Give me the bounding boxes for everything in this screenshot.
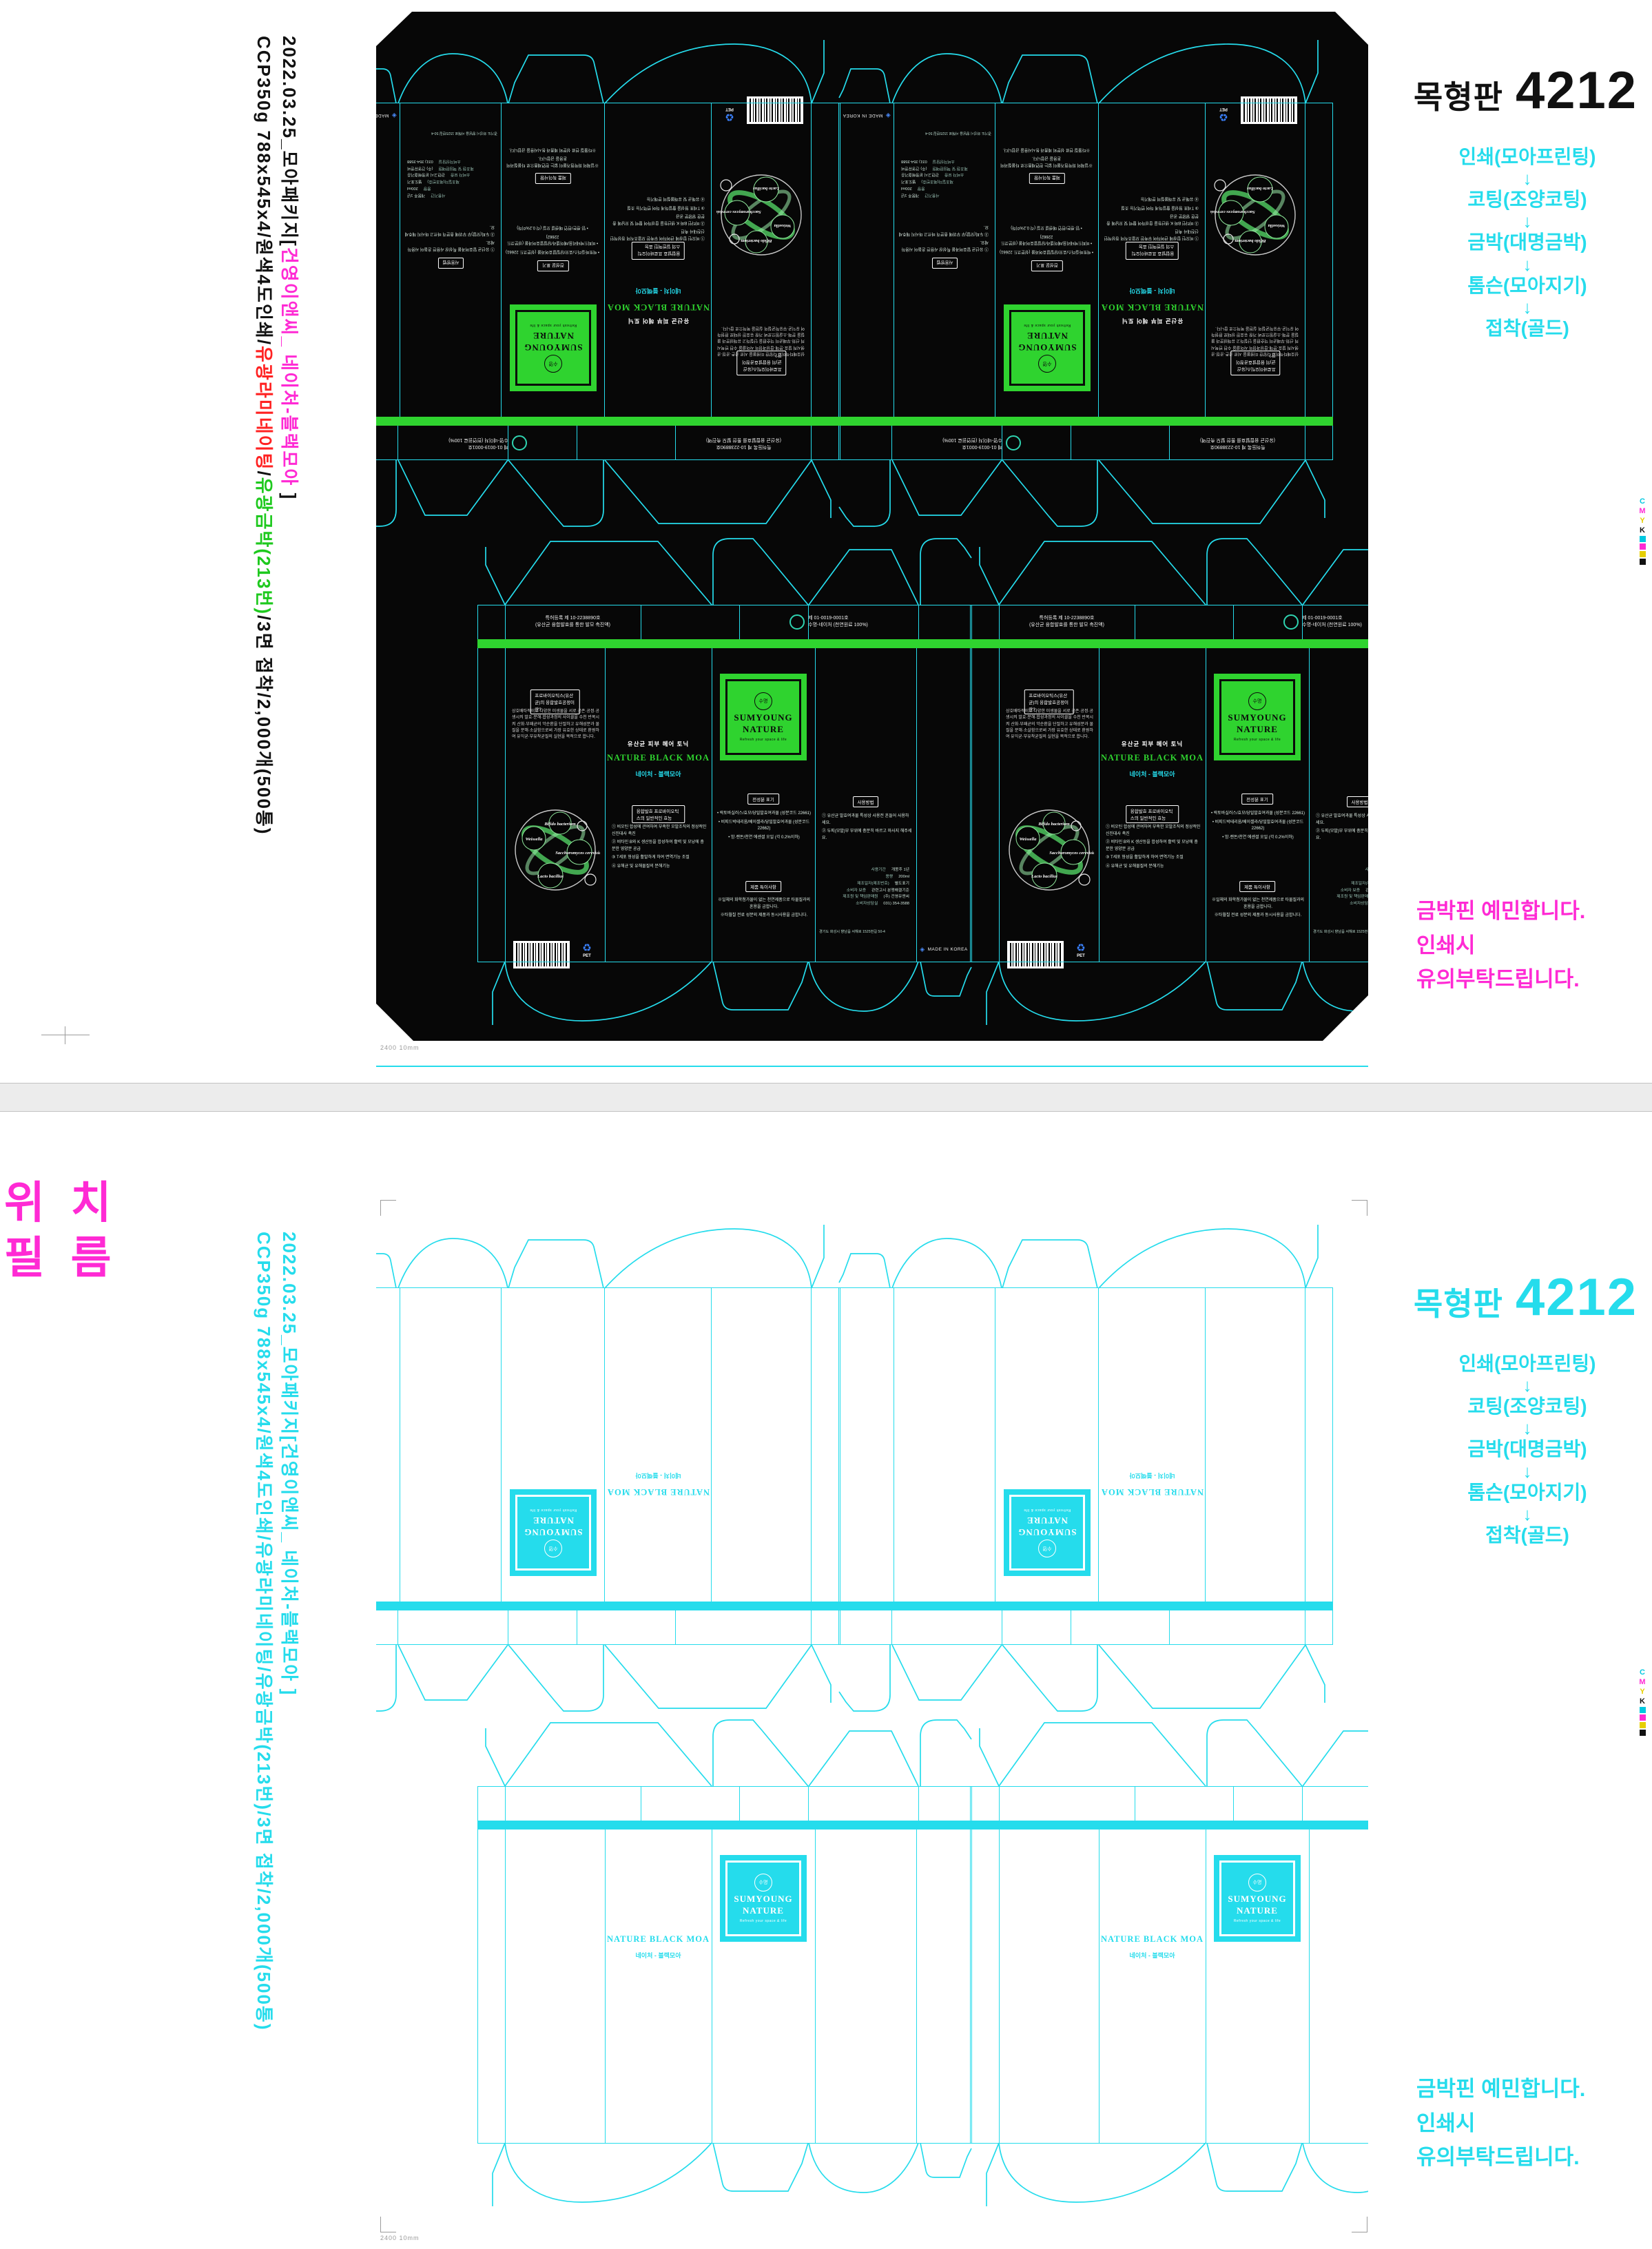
ingredient-item: • 밤·랜돈/천연 에센셜 오일 (각 0.2%이하) xyxy=(1000,224,1093,231)
label-panel: 수명 SUMYOUNG NATURE Refresh your space & … xyxy=(502,103,605,417)
natural-ingredient-badge-icon xyxy=(1283,614,1299,630)
brand-crest-icon: 수명 xyxy=(1038,1540,1056,1557)
probiotics-diagram: Weissella Bifido bacterium Saccharomyces… xyxy=(716,163,806,267)
foil-band xyxy=(376,1602,839,1610)
plate-title-number: 4212 xyxy=(1516,1267,1638,1327)
efficacy-item: ② 비타민 B와 K 생산등을 합성하여 활력 및 모낭에 충분한 영양분 공급 xyxy=(1106,840,1201,853)
maker-address: 경기도 화성시 향남읍 서해로 1525번길 50-4 xyxy=(925,131,991,136)
back-panel: 프로바이오틱스(유산균)의 융합발효공정이란? 상호배타적이고 다양한 미생물을… xyxy=(1206,1288,1305,1602)
pet-label: PET xyxy=(1212,107,1235,111)
front-panel: 유산균 피부 헤어 토닉 NATURE BLACK MOA 네이처 - 블랙모아… xyxy=(1099,103,1206,417)
patent-line2: (유산균 융합발효를 통한 발모 촉진액) xyxy=(1200,436,1275,444)
brand-tagline: Refresh your space & life xyxy=(740,1919,787,1923)
usage-list: ① 유산균 발효여과물 특성상 사용전 흔들어 사용하세요. ② 두피(모발)부… xyxy=(1316,813,1368,844)
plate-title-label: 목형판 xyxy=(1414,72,1503,118)
brand-name-top: SUMYOUNG xyxy=(1018,342,1076,353)
spec-row: 소비자 보증관련고시 분쟁해결기준 xyxy=(901,171,990,178)
brand-name-bottom: NATURE xyxy=(743,725,784,735)
bottom-flaps-outline xyxy=(376,1218,839,1288)
probiotics-diagram: Weissella Bifido bacterium Saccharomyces… xyxy=(1004,798,1094,902)
lid-strip: 특허등록 제 10-2238890호 (유산균 융합발효를 통한 발모 촉진액)… xyxy=(376,426,839,460)
brand-label: 수명 SUMYOUNG NATURE Refresh your space & … xyxy=(510,304,597,391)
brand-label-frame: 수명 SUMYOUNG NATURE Refresh your space & … xyxy=(725,679,801,755)
top-job-info-vertical-text: 2022.03.25_모아패키지[건영이앤씨_ 네이처-블랙모아 ] CCP35… xyxy=(252,36,303,952)
panel-area: 프로바이오틱스(유산균)의 융합발효공정이란? 상호배타적이고 다양한 미생물을… xyxy=(477,1830,971,2143)
label-panel: 수명 SUMYOUNG NATURE Refresh your space & … xyxy=(712,648,815,962)
bottom-flaps-outline xyxy=(839,1218,1333,1288)
plate-title-number: 4212 xyxy=(1516,61,1638,121)
product-name-kr: 네이처 - 블랙모아 xyxy=(605,287,712,296)
spec-table: 사용기간개봉후 1년 용량200ml 제조일자(제조번호)별도표기 소비자 보증… xyxy=(407,157,496,198)
panel-area: 프로바이오틱스(유산균)의 융합발효공정이란? 상호배타적이고 다양한 미생물을… xyxy=(971,1830,1368,2143)
efficacy-list: ① 비오틴 합성에 관여하여 부족한 모발조직의 정상적인 신진대사 촉진 ② … xyxy=(1106,825,1201,873)
job-info-line2: CCP350g 788x545x4/원색4도인쇄/유광라미네이팅/유광금박(21… xyxy=(252,36,278,952)
carton-dieline: 특허등록 제 10-2238890호 (유산균 융합발효를 통한 발모 촉진액)… xyxy=(376,1218,839,1734)
arrow-down-icon: ↓ xyxy=(1414,1462,1641,1480)
pet-recycle-icon: ♻PET xyxy=(575,943,599,958)
spec-row: 용량200ml xyxy=(820,874,909,881)
ingredient-item: • 밤·랜돈/천연 에센셜 오일 (각 0.2%이하) xyxy=(506,224,599,231)
arrow-down-icon: ↓ xyxy=(1414,212,1641,230)
brand-name-bottom: NATURE xyxy=(743,1906,784,1916)
efficacy-item: ② 비타민 B와 K 생산등을 합성하여 활력 및 모낭에 충분한 영양분 공급 xyxy=(1103,212,1199,225)
cert-line2: 수명-네이처 (천연원료 100%) xyxy=(448,436,508,444)
product-name-en: NATURE BLACK MOA xyxy=(1099,1486,1206,1497)
spec-row: 소비자상담실031) 354-3588 xyxy=(820,901,909,908)
process-step: 접착(골드) xyxy=(1414,1524,1641,1546)
patent-text: 특허등록 제 10-2238890호 (유산균 융합발효를 통한 발모 촉진액) xyxy=(999,605,1135,639)
lid-strip: 특허등록 제 10-2238890호 (유산균 융합발효를 통한 발모 촉진액)… xyxy=(477,1786,971,1821)
usage-heading: 사용방법 xyxy=(1347,796,1368,807)
special-line: ※타월칠 전료 성분외 제품과 동시사용을 금합니다. xyxy=(506,145,599,152)
film-edge-line xyxy=(376,1066,1368,1067)
brand-label: 수명 SUMYOUNG NATURE Refresh your space & … xyxy=(1004,304,1091,391)
foil-band xyxy=(839,1602,1333,1610)
product-name-kr: 네이처 - 블랙모아 xyxy=(1099,1471,1206,1480)
process-step: 코팅(조양코팅) xyxy=(1414,189,1641,211)
spec-table: 사용기간개봉후 1년 용량200ml 제조일자(제조번호)별도표기 소비자 보증… xyxy=(820,867,909,908)
maker-address: 경기도 화성시 향남읍 서해로 1525번길 50-4 xyxy=(431,131,497,136)
diagram-label: Saccharomyces cerevisiae xyxy=(555,851,600,856)
patent-line2: (유산균 융합발효를 통한 발모 촉진액) xyxy=(706,436,781,444)
certification-text: 제 01-0019-0001호 수명-네이처 (천연원료 100%) xyxy=(739,605,918,639)
brand-crest-icon: 수명 xyxy=(754,692,772,710)
ingredients-heading: 전성분 표기 xyxy=(1241,794,1273,805)
cert-line2: 수명-네이처 (천연원료 100%) xyxy=(808,622,868,630)
back-panel: 프로바이오틱스(유산균)의 융합발효공정이란? 상호배타적이고 다양한 미생물을… xyxy=(1206,103,1305,417)
brand-label-frame: 수명 SUMYOUNG NATURE Refresh your space & … xyxy=(1009,1495,1085,1571)
brand-tagline: Refresh your space & life xyxy=(1024,1508,1071,1512)
bottom-flaps-outline xyxy=(839,33,1333,103)
usage-item: ① 유산균 발효여과물 특성상 사용전 흔들어 사용하세요. xyxy=(1316,813,1368,827)
product-type: 유산균 피부 헤어 토닉 xyxy=(605,740,712,748)
front-panel: 유산균 피부 헤어 토닉 NATURE BLACK MOA 네이처 - 블랙모아… xyxy=(605,1830,712,2143)
arrow-down-icon: ↓ xyxy=(1414,1419,1641,1437)
label-panel: 수명 SUMYOUNG NATURE Refresh your space & … xyxy=(1206,648,1309,962)
diagram-label: Weissella xyxy=(526,837,544,842)
process-step: 톰슨(모아지기) xyxy=(1414,1482,1641,1504)
product-name-kr: 네이처 - 블랙모아 xyxy=(605,1471,712,1480)
bottom-flaps-outline xyxy=(971,2143,1368,2213)
ingredients-list: • 락토바실러스/효모/당밀발효여과물 (성분코드 22661) • 비피드박테… xyxy=(506,222,599,254)
brand-label: 수명 SUMYOUNG NATURE Refresh your space & … xyxy=(1214,1855,1301,1942)
special-line: ※타월칠 전료 성분외 제품과 동시사용을 금합니다. xyxy=(1000,145,1093,152)
spec-row: 사용기간개봉후 1년 xyxy=(407,191,496,198)
made-in-korea: ◈ MADE IN KOREA xyxy=(916,946,971,953)
efficacy-item: ① 비오틴 합성에 관여하여 부족한 모발조직의 정상적인 신진대사 촉진 xyxy=(1106,825,1201,838)
brand-name-top: SUMYOUNG xyxy=(734,713,792,723)
efficacy-item: ③ T세포 형성을 활발하게 하여 면역기능 조절 xyxy=(1103,203,1199,210)
special-line: ※일체의 화학첨가물이 없는 천연제품으로 타물질과의 혼용을 금합니다. xyxy=(506,154,599,167)
diagram-label: Bifido bacterium xyxy=(1235,238,1266,243)
spec-table: 사용기간개봉후 1년 용량200ml 제조일자(제조번호)별도표기 소비자 보증… xyxy=(901,157,990,198)
panel-area: 프로바이오틱스(유산균)의 융합발효공정이란? 상호배타적이고 다양한 미생물을… xyxy=(839,1288,1333,1602)
product-name-en: NATURE BLACK MOA xyxy=(605,302,712,312)
diagram-label: Bifido bacterium xyxy=(1037,822,1069,827)
spec-row: 제조일자(제조번호)별도표기 xyxy=(1314,881,1368,888)
diagram-label: Lacto bacillus xyxy=(1247,186,1274,191)
usage-item: ② 두피(모발)부 부위에 충분히 바르고 마사지 해주세요. xyxy=(822,829,912,842)
plate-title-top: 목형판 4212 xyxy=(1414,61,1638,121)
process-step: 접착(골드) xyxy=(1414,318,1641,340)
ingredient-item: • 비피드박테리움/베이셀라/당밀발효여과물 (성분코드 22662) xyxy=(1211,820,1305,833)
lid-flaps-outline xyxy=(971,1697,1368,1786)
certification-text: 제 01-0019-0001호 수명-네이처 (천연원료 100%) xyxy=(1233,605,1368,639)
usage-heading: 사용방법 xyxy=(438,258,464,269)
printed-plate: 특허등록 제 10-2238890호 (유산균 융합발효를 통한 발모 촉진액)… xyxy=(376,12,1368,1041)
brand-tagline: Refresh your space & life xyxy=(1024,323,1071,327)
bottom-flaps-outline xyxy=(376,33,839,103)
label-panel: 수명 SUMYOUNG NATURE Refresh your space & … xyxy=(995,1288,1099,1602)
ingredient-item: • 밤·랜돈/천연 에센셜 오일 (각 0.2%이하) xyxy=(1211,835,1305,842)
lid-strip: 특허등록 제 10-2238890호 (유산균 융합발효를 통한 발모 촉진액)… xyxy=(839,1610,1333,1645)
back-panel: 프로바이오틱스(유산균)의 융합발효공정이란? 상호배타적이고 다양한 미생물을… xyxy=(999,648,1099,962)
product-name-en: NATURE BLACK MOA xyxy=(1099,753,1206,763)
brand-name-top: SUMYOUNG xyxy=(1228,713,1286,723)
usage-item: ② 두피(모발)부 부위에 충분히 바르고 마사지 해주세요. xyxy=(404,223,495,236)
carton-dieline: 특허등록 제 10-2238890호 (유산균 융합발효를 통한 발모 촉진액)… xyxy=(477,515,971,1032)
carton-dieline: 특허등록 제 10-2238890호 (유산균 융합발효를 통한 발모 촉진액)… xyxy=(971,515,1368,1032)
ingredients-heading: 전성분 표기 xyxy=(1031,260,1063,271)
carton-dieline: 특허등록 제 10-2238890호 (유산균 융합발효를 통한 발모 촉진액)… xyxy=(971,1697,1368,2213)
spec-row: 사용기간개봉후 1년 xyxy=(820,867,909,874)
product-name-en: NATURE BLACK MOA xyxy=(605,753,712,763)
panel-area: 프로바이오틱스(유산균)의 융합발효공정이란? 상호배타적이고 다양한 미생물을… xyxy=(971,648,1368,962)
brand-label: 수명 SUMYOUNG NATURE Refresh your space & … xyxy=(1214,674,1301,760)
efficacy-item: ② 비타민 B와 K 생산등을 합성하여 활력 및 모낭에 충분한 영양분 공급 xyxy=(612,840,708,853)
brand-tagline: Refresh your space & life xyxy=(530,1508,577,1512)
diagram-label: Weissella xyxy=(1268,223,1286,228)
ingredient-item: • 락토바실러스/효모/당밀발효여과물 (성분코드 22661) xyxy=(717,811,811,818)
ingredient-item: • 락토바실러스/효모/당밀발효여과물 (성분코드 22661) xyxy=(506,247,599,254)
usage-panel: 사용방법 ① 유산균 발효여과물 특성상 사용전 흔들어 사용하세요. ② 두피… xyxy=(400,103,502,417)
pet-label: PET xyxy=(718,107,741,111)
back-panel: 프로바이오틱스(유산균)의 융합발효공정이란? 상호배타적이고 다양한 미생물을… xyxy=(712,1288,812,1602)
process-step: 톰슨(모아지기) xyxy=(1414,275,1641,297)
usage-panel: 사용방법 ① 유산균 발효여과물 특성상 사용전 흔들어 사용하세요. ② 두피… xyxy=(400,1288,502,1602)
side-panel: ◈ MADE IN KOREA xyxy=(916,648,971,962)
efficacy-heading: 융합발효 프로바이오틱스의 일반적인 효능 xyxy=(632,805,685,823)
spec-row: 소비자 보증관련고시 분쟁해결기준 xyxy=(820,888,909,895)
efficacy-item: ③ T세포 형성을 활발하게 하여 면역기능 조절 xyxy=(612,855,708,862)
panel-area: 프로바이오틱스(유산균)의 융합발효공정이란? 상호배타적이고 다양한 미생물을… xyxy=(477,648,971,962)
made-in-korea: ◈ MADE IN KOREA xyxy=(376,112,400,119)
brand-label-frame: 수명 SUMYOUNG NATURE Refresh your space & … xyxy=(1009,310,1085,386)
page-divider xyxy=(0,1083,1652,1112)
label-panel: 수명 SUMYOUNG NATURE Refresh your space & … xyxy=(1206,1830,1309,2143)
special-line: ※타월칠 전료 성분외 제품과 동시사용을 금합니다. xyxy=(717,913,811,920)
brand-name-bottom: NATURE xyxy=(1237,725,1278,735)
brand-label: 수명 SUMYOUNG NATURE Refresh your space & … xyxy=(720,1855,807,1942)
side-panel: ◈ MADE IN KOREA xyxy=(839,103,894,417)
special-heading: 제품 특이사항 xyxy=(535,173,571,184)
cmyk-color-bar-top: C M Y K xyxy=(1637,497,1648,565)
brand-name-bottom: NATURE xyxy=(533,331,574,341)
spec-row: 소비자 보증관련고시 분쟁해결기준 xyxy=(1314,888,1368,895)
usage-item: ② 두피(모발)부 부위에 충분히 바르고 마사지 해주세요. xyxy=(1316,829,1368,842)
special-list: ※일체의 화학첨가물이 없는 천연제품으로 타물질과의 혼용을 금합니다. ※타… xyxy=(506,143,599,167)
brand-name-bottom: NATURE xyxy=(1026,331,1068,341)
plate-title-bottom: 목형판 4212 xyxy=(1414,1267,1638,1327)
spec-row: 제조일자(제조번호)별도표기 xyxy=(407,177,496,184)
efficacy-list: ① 비오틴 합성에 관여하여 부족한 모발조직의 정상적인 신진대사 촉진 ② … xyxy=(609,192,705,240)
efficacy-item: ① 비오틴 합성에 관여하여 부족한 모발조직의 정상적인 신진대사 촉진 xyxy=(1103,227,1199,240)
ingredient-item: • 비피드박테리움/베이셀라/당밀발효여과물 (성분코드 22662) xyxy=(717,820,811,833)
diagram-label: Saccharomyces cerevisiae xyxy=(1210,209,1255,214)
cert-line1: 제 01-0019-0001호 xyxy=(808,615,868,623)
back-paragraph: 상호배타적이고 다양한 미생물을 서로 공존·공정·공생시켜 발효·분해·합성과… xyxy=(1211,324,1299,356)
patent-line1: 특허등록 제 10-2238890호 xyxy=(535,615,610,623)
brand-label-frame: 수명 SUMYOUNG NATURE Refresh your space & … xyxy=(725,1861,801,1936)
carton-dieline: 특허등록 제 10-2238890호 (유산균 융합발효를 통한 발모 촉진액)… xyxy=(376,33,839,550)
side-panel: ◈ MADE IN KOREA xyxy=(376,103,400,417)
usage-list: ① 유산균 발효여과물 특성상 사용전 흔들어 사용하세요. ② 두피(모발)부… xyxy=(822,813,912,844)
lid-strip: 특허등록 제 10-2238890호 (유산균 융합발효를 통한 발모 촉진액)… xyxy=(839,426,1333,460)
product-name-kr: 네이처 - 블랙모아 xyxy=(605,1951,712,1960)
arrow-down-icon: ↓ xyxy=(1414,1376,1641,1394)
brand-crest-icon: 수명 xyxy=(754,1874,772,1892)
usage-panel: 사용방법 ① 유산균 발효여과물 특성상 사용전 흔들어 사용하세요. ② 두피… xyxy=(1309,1830,1368,2143)
back-panel: 프로바이오틱스(유산균)의 융합발효공정이란? 상호배타적이고 다양한 미생물을… xyxy=(999,1830,1099,2143)
panel-area: 프로바이오틱스(유산균)의 융합발효공정이란? 상호배타적이고 다양한 미생물을… xyxy=(376,103,839,417)
foil-band xyxy=(839,417,1333,426)
brand-tagline: Refresh your space & life xyxy=(740,738,787,742)
cert-line1: 제 01-0019-0001호 xyxy=(448,443,508,450)
made-in-korea: ◈ MADE IN KOREA xyxy=(839,112,894,119)
natural-ingredient-badge-icon xyxy=(512,435,527,450)
efficacy-item: ③ T세포 형성을 활발하게 하여 면역기능 조절 xyxy=(1106,855,1201,862)
front-panel: 유산균 피부 헤어 토닉 NATURE BLACK MOA 네이처 - 블랙모아… xyxy=(605,103,712,417)
brand-crest-icon: 수명 xyxy=(1248,1874,1266,1892)
product-name-kr: 네이처 - 블랙모아 xyxy=(1099,769,1206,778)
product-type: 유산균 피부 헤어 토닉 xyxy=(1099,317,1206,325)
brand-tagline: Refresh your space & life xyxy=(1234,738,1281,742)
foil-warning-note-top: 금박핀 예민합니다. 인쇄시 유의부탁드립니다. xyxy=(1416,894,1585,997)
foil-band xyxy=(376,417,839,426)
cmyk-color-bar-bottom: C M Y K xyxy=(1637,1668,1648,1736)
spec-row: 용량200ml xyxy=(407,184,496,191)
cert-line2: 수명-네이처 (천연원료 100%) xyxy=(942,436,1002,444)
spec-row: 소비자상담실031) 354-3588 xyxy=(1314,901,1368,908)
product-name-en: NATURE BLACK MOA xyxy=(1099,1934,1206,1945)
bottom-flaps-outline xyxy=(477,2143,971,2213)
diagram-label: Saccharomyces cerevisiae xyxy=(1049,851,1094,856)
product-name-en: NATURE BLACK MOA xyxy=(1099,302,1206,312)
foil-band xyxy=(477,639,971,648)
patent-line1: 특허등록 제 10-2238890호 xyxy=(706,443,781,450)
spec-row: 제조원 및 책임판매원(주) 건영유앤씨 xyxy=(901,164,990,171)
cert-line1: 제 01-0019-0001호 xyxy=(942,443,1002,450)
back-panel: 프로바이오틱스(유산균)의 융합발효공정이란? 상호배타적이고 다양한 미생물을… xyxy=(712,103,812,417)
diamond-cert-icon: ◈ xyxy=(391,112,396,119)
job-info-line1: 2022.03.25_모아패키지[건영이앤씨_ 네이처-블랙모아 ] xyxy=(278,1232,303,2148)
brand-label: 수명 SUMYOUNG NATURE Refresh your space & … xyxy=(1004,1489,1091,1576)
job-info-line1: 2022.03.25_모아패키지[건영이앤씨_ 네이처-블랙모아 ] xyxy=(278,36,303,952)
diagram-label: Lacto bacillus xyxy=(753,186,780,191)
ruler-note-bottom: 2400 10mm xyxy=(380,2235,420,2241)
diamond-cert-icon: ◈ xyxy=(885,112,890,119)
special-heading: 제품 특이사항 xyxy=(745,881,781,892)
ingredients-list: • 락토바실러스/효모/당밀발효여과물 (성분코드 22661) • 비피드박테… xyxy=(1000,222,1093,254)
probiotics-diagram: Weissella Bifido bacterium Saccharomyces… xyxy=(510,798,600,902)
special-list: ※일체의 화학첨가물이 없는 천연제품으로 타물질과의 혼용을 금합니다. ※타… xyxy=(717,898,811,922)
ingredient-item: • 락토바실러스/효모/당밀발효여과물 (성분코드 22661) xyxy=(1000,247,1093,254)
efficacy-item: ③ T세포 형성을 활발하게 하여 면역기능 조절 xyxy=(609,203,705,210)
efficacy-heading: 융합발효 프로바이오틱스의 일반적인 효능 xyxy=(1126,805,1179,823)
arrow-down-icon: ↓ xyxy=(1414,256,1641,273)
front-panel: 유산균 피부 헤어 토닉 NATURE BLACK MOA 네이처 - 블랙모아… xyxy=(1099,1830,1206,2143)
diagram-label: Weissella xyxy=(1020,837,1037,842)
certification-text: 제 01-0019-0001호 수명-네이처 (천연원료 100%) xyxy=(892,426,1071,460)
panel-area: 프로바이오틱스(유산균)의 융합발효공정이란? 상호배타적이고 다양한 미생물을… xyxy=(839,103,1333,417)
ruler-note-top: 2400 10mm xyxy=(380,1044,420,1051)
front-panel: 유산균 피부 헤어 토닉 NATURE BLACK MOA 네이처 - 블랙모아… xyxy=(1099,648,1206,962)
special-list: ※일체의 화학첨가물이 없는 천연제품으로 타물질과의 혼용을 금합니다. ※타… xyxy=(1211,898,1305,922)
carton-dieline: 특허등록 제 10-2238890호 (유산균 융합발효를 통한 발모 촉진액)… xyxy=(839,33,1333,550)
back-paragraph: 상호배타적이고 다양한 미생물을 서로 공존·공정·공생시켜 발효·분해·합성과… xyxy=(512,709,599,740)
brand-label: 수명 SUMYOUNG NATURE Refresh your space & … xyxy=(510,1489,597,1576)
product-type: 유산균 피부 헤어 토닉 xyxy=(605,317,712,325)
special-heading: 제품 특이사항 xyxy=(1239,881,1275,892)
foil-band xyxy=(971,639,1368,648)
diagram-label: Saccharomyces cerevisiae xyxy=(716,209,761,214)
process-step: 코팅(조양코팅) xyxy=(1414,1396,1641,1418)
product-type: 유산균 피부 헤어 토닉 xyxy=(1099,740,1206,748)
diagram-label: Weissella xyxy=(774,223,792,228)
patent-line2: (유산균 융합발효를 통한 발모 촉진액) xyxy=(1029,622,1104,630)
ingredients-list: • 락토바실러스/효모/당밀발효여과물 (성분코드 22661) • 비피드박테… xyxy=(1211,811,1305,843)
side-panel: ◈ MADE IN KOREA xyxy=(916,1830,971,2143)
usage-heading: 사용방법 xyxy=(932,258,958,269)
label-panel: 수명 SUMYOUNG NATURE Refresh your space & … xyxy=(712,1830,815,2143)
front-panel: 유산균 피부 헤어 토닉 NATURE BLACK MOA 네이처 - 블랙모아… xyxy=(1099,1288,1206,1602)
certification-text: 제 01-0019-0001호 수명-네이처 (천연원료 100%) xyxy=(398,426,577,460)
product-name-en: NATURE BLACK MOA xyxy=(605,1934,712,1945)
efficacy-item: ④ 유해균 및 유해물질의 분해기능 xyxy=(1106,864,1201,871)
spec-table: 사용기간개봉후 1년 용량200ml 제조일자(제조번호)별도표기 소비자 보증… xyxy=(1314,867,1368,908)
process-step: 인쇄(모아프린팅) xyxy=(1414,146,1641,168)
ingredients-heading: 전성분 표기 xyxy=(747,794,779,805)
diagram-label: Lacto bacillus xyxy=(1031,874,1057,879)
diagram-label: Bifido bacterium xyxy=(741,238,772,243)
efficacy-list: ① 비오틴 합성에 관여하여 부족한 모발조직의 정상적인 신진대사 촉진 ② … xyxy=(1103,192,1199,240)
patent-line2: (유산균 융합발효를 통한 발모 촉진액) xyxy=(535,622,610,630)
arrow-down-icon: ↓ xyxy=(1414,298,1641,316)
position-film-plate: 특허등록 제 10-2238890호 (유산균 융합발효를 통한 발모 촉진액)… xyxy=(376,1195,1368,2226)
brand-label: 수명 SUMYOUNG NATURE Refresh your space & … xyxy=(720,674,807,760)
usage-heading: 사용방법 xyxy=(853,796,879,807)
registration-mark xyxy=(41,1026,90,1044)
ingredients-heading: 전성분 표기 xyxy=(537,260,569,271)
spec-row: 용량200ml xyxy=(1314,874,1368,881)
spec-row: 제조일자(제조번호)별도표기 xyxy=(901,177,990,184)
side-panel: ◈ MADE IN KOREA xyxy=(839,1288,894,1602)
probiotics-diagram: Weissella Bifido bacterium Saccharomyces… xyxy=(1210,163,1300,267)
side-panel: ◈ MADE IN KOREA xyxy=(376,1288,400,1602)
efficacy-item: ④ 유해균 및 유해물질의 분해기능 xyxy=(609,194,705,201)
position-film-label: 위 치 필 름 xyxy=(4,1175,118,1285)
spec-row: 제조일자(제조번호)별도표기 xyxy=(820,881,909,888)
patent-line1: 특허등록 제 10-2238890호 xyxy=(1029,615,1104,623)
efficacy-item: ④ 유해균 및 유해물질의 분해기능 xyxy=(612,864,708,871)
product-name-kr: 네이처 - 블랙모아 xyxy=(1099,287,1206,296)
arrow-down-icon: ↓ xyxy=(1414,1505,1641,1523)
process-flow-top: 인쇄(모아프린팅) ↓ 코팅(조양코팅) ↓ 금박(대명금박) ↓ 톰슨(모아지… xyxy=(1414,145,1641,341)
brand-crest-icon: 수명 xyxy=(1248,692,1266,710)
brand-name-top: SUMYOUNG xyxy=(1228,1894,1286,1905)
brand-label-frame: 수명 SUMYOUNG NATURE Refresh your space & … xyxy=(515,1495,591,1571)
lid-flaps-outline xyxy=(477,515,971,605)
patent-text: 특허등록 제 10-2238890호 (유산균 융합발효를 통한 발모 촉진액) xyxy=(676,426,812,460)
usage-panel: 사용방법 ① 유산균 발효여과물 특성상 사용전 흔들어 사용하세요. ② 두피… xyxy=(815,1830,916,2143)
special-line: ※타월칠 전료 성분외 제품과 동시사용을 금합니다. xyxy=(1211,913,1305,920)
pet-recycle-icon: ♻PET xyxy=(718,107,741,122)
diagram-label: Lacto bacillus xyxy=(537,874,564,879)
brand-tagline: Refresh your space & life xyxy=(1234,1919,1281,1923)
plate-title-label: 목형판 xyxy=(1414,1279,1503,1325)
patent-text: 특허등록 제 10-2238890호 (유산균 융합발효를 통한 발모 촉진액) xyxy=(505,605,641,639)
efficacy-item: ④ 유해균 및 유해물질의 분해기능 xyxy=(1103,194,1199,201)
special-list: ※일체의 화학첨가물이 없는 천연제품으로 타물질과의 혼용을 금합니다. ※타… xyxy=(1000,143,1093,167)
process-flow-bottom: 인쇄(모아프린팅) ↓ 코팅(조양코팅) ↓ 금박(대명금박) ↓ 톰슨(모아지… xyxy=(1414,1351,1641,1548)
usage-list: ① 유산균 발효여과물 특성상 사용전 흔들어 사용하세요. ② 두피(모발)부… xyxy=(404,221,495,251)
arrow-down-icon: ↓ xyxy=(1414,169,1641,187)
brand-crest-icon: 수명 xyxy=(544,355,562,373)
brand-name-top: SUMYOUNG xyxy=(524,342,582,353)
pet-label: PET xyxy=(575,954,599,958)
efficacy-item: ① 비오틴 합성에 관여하여 부족한 모발조직의 정상적인 신진대사 촉진 xyxy=(612,825,708,838)
spec-row: 제조원 및 책임판매원(주) 건영유앤씨 xyxy=(1314,894,1368,901)
brand-name-bottom: NATURE xyxy=(533,1515,574,1526)
natural-ingredient-badge-icon xyxy=(1006,435,1021,450)
brand-tagline: Refresh your space & life xyxy=(530,323,577,327)
spec-row: 사용기간개봉후 1년 xyxy=(901,191,990,198)
spec-row: 제조원 및 책임판매원(주) 건영유앤씨 xyxy=(820,894,909,901)
spec-row: 용량200ml xyxy=(901,184,990,191)
efficacy-heading: 융합발효 프로바이오틱스의 일반적인 효능 xyxy=(1126,242,1179,260)
foil-band xyxy=(477,1821,971,1830)
usage-item: ② 두피(모발)부 부위에 충분히 바르고 마사지 해주세요. xyxy=(898,223,989,236)
ingredient-item: • 락토바실러스/효모/당밀발효여과물 (성분코드 22661) xyxy=(1211,811,1305,818)
spec-row: 소비자상담실031) 354-3588 xyxy=(407,157,496,164)
lid-flaps-outline xyxy=(477,1697,971,1786)
usage-panel: 사용방법 ① 유산균 발효여과물 특성상 사용전 흔들어 사용하세요. ② 두피… xyxy=(894,103,995,417)
usage-panel: 사용방법 ① 유산균 발효여과물 특성상 사용전 흔들어 사용하세요. ② 두피… xyxy=(1309,648,1368,962)
lid-strip: 특허등록 제 10-2238890호 (유산균 융합발효를 통한 발모 촉진액)… xyxy=(376,1610,839,1645)
brand-label-frame: 수명 SUMYOUNG NATURE Refresh your space & … xyxy=(1219,1861,1295,1936)
usage-item: ① 유산균 발효여과물 특성상 사용전 흔들어 사용하세요. xyxy=(822,813,912,827)
spec-row: 소비자 보증관련고시 분쟁해결기준 xyxy=(407,171,496,178)
